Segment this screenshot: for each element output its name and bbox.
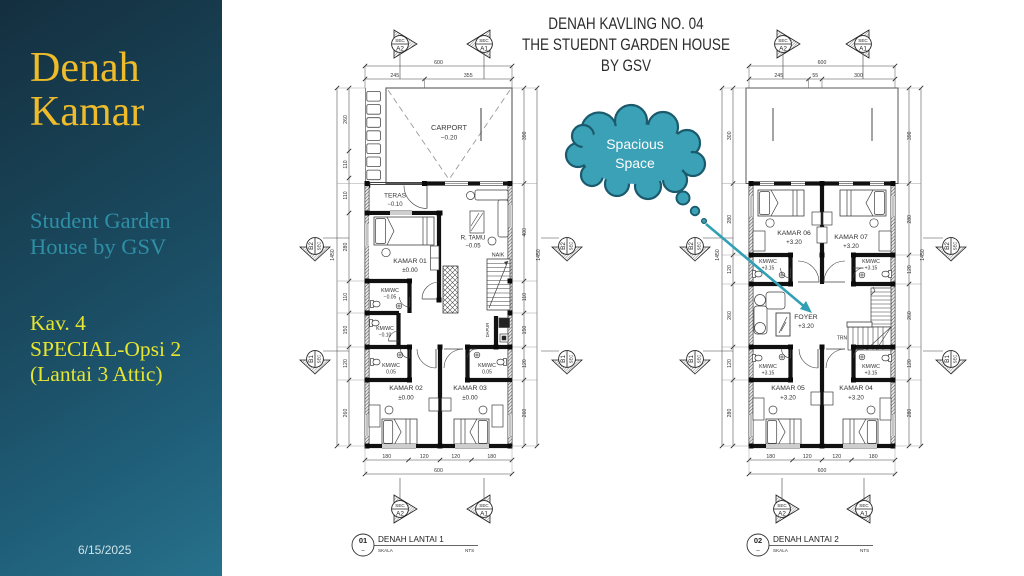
svg-text:110: 110 — [343, 160, 349, 168]
svg-text:600: 600 — [434, 468, 443, 474]
svg-text:+3.20: +3.20 — [780, 395, 796, 402]
svg-text:TRN: TRN — [837, 336, 848, 342]
svg-text:150: 150 — [343, 326, 349, 335]
svg-text:280: 280 — [907, 215, 913, 224]
svg-text:NTS: NTS — [860, 548, 869, 553]
svg-text:150: 150 — [522, 326, 528, 335]
svg-text:SEC: SEC — [696, 242, 701, 251]
svg-text:SEC: SEC — [568, 355, 573, 364]
svg-text:SEC: SEC — [395, 38, 405, 43]
svg-text:A1: A1 — [480, 46, 488, 53]
svg-text:DENAH LANTAI 1: DENAH LANTAI 1 — [378, 535, 444, 544]
svg-text:B1: B1 — [560, 355, 567, 363]
svg-text:SEC: SEC — [316, 242, 321, 251]
svg-text:A2: A2 — [779, 46, 787, 53]
svg-text:DENAH LANTAI 2: DENAH LANTAI 2 — [773, 535, 839, 544]
svg-text:1450: 1450 — [536, 249, 542, 261]
svg-text:390: 390 — [522, 131, 528, 140]
svg-text:120: 120 — [803, 454, 812, 460]
svg-text:280: 280 — [727, 409, 733, 418]
svg-text:SEC: SEC — [778, 38, 788, 43]
svg-text:B1: B1 — [944, 355, 951, 363]
svg-text:SEC: SEC — [479, 38, 489, 43]
svg-text:−0.05: −0.05 — [384, 295, 397, 301]
svg-text:B2: B2 — [944, 242, 951, 250]
svg-text:KM/WC: KM/WC — [862, 364, 880, 370]
svg-text:KM/WC: KM/WC — [376, 326, 394, 332]
svg-text:260: 260 — [907, 311, 913, 320]
svg-text:260: 260 — [343, 115, 349, 124]
svg-text:R. TAMU: R. TAMU — [461, 235, 486, 242]
svg-text:280: 280 — [343, 243, 349, 252]
svg-text:260: 260 — [727, 311, 733, 320]
svg-text:120: 120 — [832, 454, 841, 460]
svg-text:600: 600 — [818, 468, 827, 474]
svg-text:SEC: SEC — [568, 242, 573, 251]
svg-text:KAMAR 04: KAMAR 04 — [839, 385, 873, 392]
svg-text:280: 280 — [907, 409, 913, 418]
svg-text:−0.10: −0.10 — [379, 333, 392, 339]
svg-text:120: 120 — [420, 454, 429, 460]
svg-text:+3.15: +3.15 — [865, 371, 878, 377]
svg-text:+3.15: +3.15 — [865, 266, 878, 272]
svg-text:Space: Space — [615, 155, 655, 171]
svg-text:A2: A2 — [778, 511, 786, 518]
svg-text:+3.20: +3.20 — [848, 395, 864, 402]
svg-text:FOYER: FOYER — [794, 314, 818, 321]
svg-text:245: 245 — [390, 73, 399, 79]
svg-text:+3.20: +3.20 — [843, 243, 859, 250]
svg-text:+3.15: +3.15 — [762, 266, 775, 272]
svg-text:SEC: SEC — [395, 503, 405, 508]
svg-text:KAMAR 03: KAMAR 03 — [453, 385, 487, 392]
svg-text:SKALA: SKALA — [378, 548, 394, 553]
svg-text:55: 55 — [812, 73, 818, 79]
svg-text:KAMAR 02: KAMAR 02 — [389, 385, 423, 392]
svg-text:B2: B2 — [308, 242, 315, 250]
svg-text:A1: A1 — [860, 511, 868, 518]
svg-text:CARPORT: CARPORT — [431, 123, 467, 132]
svg-text:KM/WC: KM/WC — [759, 259, 777, 265]
svg-text:110: 110 — [343, 191, 349, 199]
svg-text:B1: B1 — [688, 355, 695, 363]
svg-text:300: 300 — [854, 73, 863, 79]
svg-text:300: 300 — [727, 131, 733, 140]
svg-text:355: 355 — [464, 73, 473, 79]
svg-text:600: 600 — [818, 60, 827, 66]
svg-text:KAMAR 01: KAMAR 01 — [393, 258, 427, 265]
svg-text:120: 120 — [907, 265, 913, 274]
svg-text:KM/WC: KM/WC — [478, 363, 496, 369]
svg-text:NTS: NTS — [465, 548, 474, 553]
svg-text:A2: A2 — [396, 46, 404, 53]
svg-text:NAIK: NAIK — [492, 253, 505, 259]
svg-text:0.05: 0.05 — [386, 370, 396, 376]
svg-text:SEC: SEC — [952, 242, 957, 251]
svg-text:±0.00: ±0.00 — [402, 267, 418, 274]
svg-text:+3.15: +3.15 — [762, 371, 775, 377]
svg-text:+3.20: +3.20 — [798, 323, 814, 330]
svg-text:DAPUR: DAPUR — [485, 323, 490, 338]
svg-text:KAMAR 05: KAMAR 05 — [771, 385, 805, 392]
svg-text:KM/WC: KM/WC — [862, 259, 880, 265]
svg-text:400: 400 — [522, 228, 528, 237]
svg-text:120: 120 — [727, 265, 733, 274]
svg-text:280: 280 — [727, 215, 733, 224]
svg-text:A1: A1 — [480, 511, 488, 518]
svg-text:B1: B1 — [308, 355, 315, 363]
svg-text:A2: A2 — [396, 511, 404, 518]
svg-text:TERAS: TERAS — [384, 193, 407, 200]
svg-text:−0.20: −0.20 — [441, 135, 458, 142]
svg-text:180: 180 — [382, 454, 391, 460]
svg-text:±0.00: ±0.00 — [398, 395, 414, 402]
svg-text:1450: 1450 — [715, 249, 721, 261]
svg-text:SEC: SEC — [316, 355, 321, 364]
svg-text:SEC: SEC — [858, 38, 868, 43]
svg-text:KAMAR 07: KAMAR 07 — [834, 234, 868, 241]
svg-text:SEC: SEC — [479, 503, 489, 508]
svg-text:390: 390 — [907, 131, 913, 140]
svg-text:SEC: SEC — [952, 355, 957, 364]
svg-text:1450: 1450 — [330, 249, 336, 261]
svg-text:110: 110 — [522, 293, 528, 301]
svg-text:120: 120 — [727, 359, 733, 368]
svg-text:+3.20: +3.20 — [786, 239, 802, 246]
svg-text:KM/WC: KM/WC — [759, 364, 777, 370]
svg-text:0.05: 0.05 — [482, 370, 492, 376]
svg-text:B2: B2 — [560, 242, 567, 250]
svg-text:KAMAR 06: KAMAR 06 — [777, 230, 811, 237]
svg-text:KM/WC: KM/WC — [382, 363, 400, 369]
svg-text:120: 120 — [907, 359, 913, 368]
svg-text:−0.05: −0.05 — [465, 244, 481, 250]
svg-text:260: 260 — [522, 409, 528, 418]
svg-text:−0.10: −0.10 — [387, 202, 403, 208]
svg-text:SKALA: SKALA — [773, 548, 789, 553]
svg-text:180: 180 — [487, 454, 496, 460]
svg-text:01: 01 — [359, 536, 367, 545]
svg-text:120: 120 — [522, 359, 528, 368]
svg-text:KM/WC: KM/WC — [381, 288, 399, 294]
svg-text:Spacious: Spacious — [606, 136, 664, 152]
svg-text:110: 110 — [343, 293, 349, 301]
svg-text:02: 02 — [754, 536, 762, 545]
svg-text:B2: B2 — [688, 242, 695, 250]
svg-text:±0.00: ±0.00 — [462, 395, 478, 402]
svg-text:SEC: SEC — [777, 503, 787, 508]
svg-text:260: 260 — [343, 409, 349, 418]
svg-text:SEC: SEC — [696, 355, 701, 364]
svg-text:A1: A1 — [859, 46, 867, 53]
svg-text:180: 180 — [869, 454, 878, 460]
svg-text:600: 600 — [434, 60, 443, 66]
svg-text:245: 245 — [774, 73, 783, 79]
svg-text:120: 120 — [343, 359, 349, 368]
svg-text:120: 120 — [451, 454, 460, 460]
svg-text:SEC: SEC — [859, 503, 869, 508]
svg-text:180: 180 — [766, 454, 775, 460]
